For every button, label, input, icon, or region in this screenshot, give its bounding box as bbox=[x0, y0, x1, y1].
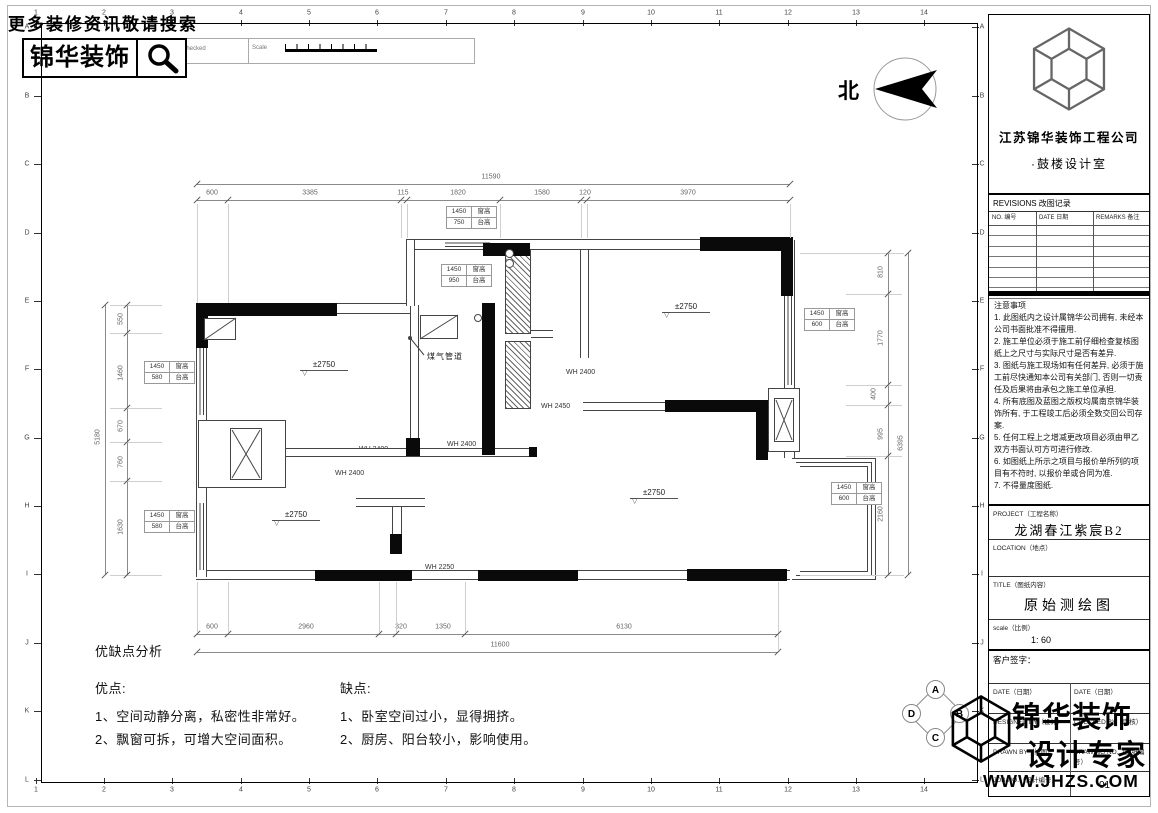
note-item: 4. 所有底图及蓝图之版权均属南京锦华装饰所有, 于工程竣工后必须全数交回公司存… bbox=[994, 396, 1144, 432]
dim-right-seg: 400 bbox=[871, 387, 878, 401]
wall-height-label: WH 2400 bbox=[335, 470, 364, 477]
grid-tick bbox=[972, 369, 979, 370]
grid-column-label: 12 bbox=[784, 787, 792, 794]
grid-tick bbox=[972, 780, 979, 781]
wall-thin bbox=[410, 305, 419, 450]
window-height-callout: 1450窗高 580台高 bbox=[144, 361, 195, 384]
grid-row-label: K bbox=[25, 708, 30, 715]
grid-tick bbox=[104, 778, 105, 784]
grid-tick bbox=[719, 20, 720, 26]
notes-title: 注意事项 bbox=[994, 300, 1144, 312]
dimension-line bbox=[908, 253, 909, 575]
grid-tick bbox=[972, 96, 979, 97]
dim-top-overall: 11590 bbox=[481, 174, 502, 181]
dim-top-seg: 1820 bbox=[449, 190, 467, 197]
pros-item: 1、空间动静分离，私密性非常好。 bbox=[95, 706, 305, 725]
title-section: TITLE（图纸内容） 原始测绘图 bbox=[989, 576, 1149, 619]
wall-segment bbox=[700, 237, 793, 251]
wall-segment bbox=[781, 240, 793, 296]
notes-section: 注意事项 1. 此图纸内之设计属锦华公司拥有, 未经本公司书面批准不得擅用. 2… bbox=[989, 296, 1149, 504]
wardrobe-box bbox=[204, 318, 236, 340]
note-item: 2. 施工单位必须于施工前仔细检查复核图纸上之尺寸与实际尺寸是否有差异. bbox=[994, 336, 1144, 360]
kitchen-fixture-box bbox=[420, 315, 458, 339]
grid-row-label: J bbox=[25, 640, 29, 647]
dimension-line bbox=[197, 652, 778, 653]
level-marker: ±2750▽ bbox=[272, 510, 320, 521]
grid-tick bbox=[514, 778, 515, 784]
extension-line bbox=[846, 294, 902, 295]
dimension-line bbox=[197, 634, 778, 635]
grid-row-label: H bbox=[24, 503, 29, 510]
gas-pipe-label: 煤气管道 bbox=[427, 351, 463, 362]
note-item: 6. 如图纸上所示之项目与报价单所列的项目有不符时, 以报价单或合同为准. bbox=[994, 456, 1144, 480]
scale-value: 1: 60 bbox=[1031, 635, 1051, 645]
grid-row-label: E bbox=[25, 298, 30, 305]
grid-tick bbox=[514, 20, 515, 26]
wall-thin bbox=[580, 250, 589, 358]
level-triangle-icon: ▽ bbox=[302, 369, 307, 377]
grid-column-label: 4 bbox=[239, 787, 243, 794]
grid-column-label: 1 bbox=[34, 787, 38, 794]
grid-tick bbox=[924, 778, 925, 784]
project-value: 龙湖春江紫宸B2 bbox=[989, 520, 1149, 539]
window-height-callout: 1450窗高 950台高 bbox=[441, 264, 492, 287]
scale-label: scale（比例） bbox=[993, 622, 1034, 632]
grid-tick bbox=[972, 233, 979, 234]
revisions-header: REVISIONS 改图记录 bbox=[989, 193, 1149, 211]
cons-item: 1、卧室空间过小，显得拥挤。 bbox=[340, 706, 523, 725]
drawing-sheet: 更多装修资讯敬请搜索 RevNo Revision note Signature… bbox=[0, 0, 1158, 813]
dimension-line bbox=[888, 253, 889, 575]
revision-row bbox=[989, 268, 1149, 278]
grid-column-label: 7 bbox=[444, 787, 448, 794]
company-name: 江苏锦华装饰工程公司 bbox=[989, 127, 1149, 146]
grid-tick bbox=[34, 96, 41, 97]
rev-col-no: NO. 编号 bbox=[989, 212, 1036, 225]
grid-column-label: 11 bbox=[715, 787, 722, 794]
grid-column-label: 6 bbox=[375, 10, 379, 17]
wall-segment bbox=[478, 570, 578, 581]
grid-tick bbox=[972, 643, 979, 644]
grid-tick bbox=[856, 778, 857, 784]
grid-row-label: H bbox=[979, 503, 984, 510]
grid-row-label: J bbox=[980, 640, 984, 647]
grid-column-label: 13 bbox=[852, 787, 860, 794]
level-marker: ±2750▽ bbox=[662, 302, 710, 313]
grid-tick bbox=[972, 506, 979, 507]
shaft-box-inner bbox=[230, 428, 262, 480]
grid-row-label: G bbox=[24, 435, 29, 442]
grid-tick bbox=[34, 301, 41, 302]
grid-tick bbox=[651, 778, 652, 784]
grid-row-label: I bbox=[26, 571, 28, 578]
sheet-title-value: 原始测绘图 bbox=[989, 595, 1149, 615]
shaft-box-inner bbox=[774, 398, 794, 442]
grid-row-label: I bbox=[981, 571, 983, 578]
window-height-callout: 1450窗高 750台高 bbox=[446, 206, 497, 229]
grid-column-label: 9 bbox=[581, 10, 585, 17]
extension-line bbox=[846, 405, 902, 406]
grid-column-label: 5 bbox=[307, 10, 311, 17]
flue-hatch bbox=[505, 341, 531, 409]
grid-column-label: 10 bbox=[647, 787, 655, 794]
dim-right-seg: 2160 bbox=[878, 505, 885, 523]
wall-thin bbox=[356, 498, 425, 507]
extension-line bbox=[790, 204, 791, 238]
extension-line bbox=[846, 385, 902, 386]
wall-segment bbox=[756, 412, 768, 460]
revision-row bbox=[989, 226, 1149, 236]
dimension-line bbox=[197, 184, 790, 185]
window-height-callout: 1450窗高 600台高 bbox=[831, 482, 882, 505]
brand-logo-box: 锦华装饰 bbox=[22, 38, 187, 78]
grid-column-label: 5 bbox=[307, 787, 311, 794]
dim-left-seg: 550 bbox=[118, 312, 125, 326]
grid-row-label: F bbox=[25, 366, 29, 373]
note-item: 7. 不得量度图纸. bbox=[994, 480, 1144, 492]
watermark-brand-line1: 锦华装饰 bbox=[1012, 694, 1132, 736]
dim-bottom-seg: 600 bbox=[205, 624, 219, 631]
wall-thin bbox=[531, 330, 553, 338]
dim-bottom-seg: 2960 bbox=[297, 624, 315, 631]
project-label: PROJECT（工程名称） bbox=[993, 508, 1062, 518]
rev-col-date: DATE 日期 bbox=[1036, 212, 1093, 225]
grid-tick bbox=[34, 711, 41, 712]
extension-line bbox=[379, 582, 380, 632]
grid-tick bbox=[36, 778, 37, 784]
wall-thin bbox=[583, 402, 665, 411]
wall-segment bbox=[315, 570, 412, 581]
grid-row-label: A bbox=[980, 24, 985, 31]
wall-segment bbox=[196, 303, 337, 316]
wall-segment bbox=[529, 447, 537, 457]
elevation-circle-d: D bbox=[902, 704, 921, 723]
grid-column-label: 13 bbox=[852, 10, 860, 17]
grid-tick bbox=[972, 438, 979, 439]
window-height-callout: 1450窗高 600台高 bbox=[804, 308, 855, 331]
wall-segment bbox=[406, 438, 420, 456]
strip-scale-label: Scale bbox=[252, 45, 267, 51]
level-triangle-icon: ▽ bbox=[274, 519, 279, 527]
grid-row-label: G bbox=[979, 435, 984, 442]
strip-divider bbox=[248, 39, 249, 63]
cons-item: 2、厨房、阳台较小，影响使用。 bbox=[340, 729, 537, 748]
wall-height-label: WH 2400 bbox=[566, 369, 595, 376]
location-label: LOCATION（地点） bbox=[993, 542, 1052, 552]
level-triangle-icon: ▽ bbox=[632, 497, 637, 505]
brand-logo-text: 锦华装饰 bbox=[24, 40, 136, 76]
dim-left-seg: 670 bbox=[118, 419, 125, 433]
project-section: PROJECT（工程名称） 龙湖春江紫宸B2 bbox=[989, 504, 1149, 539]
grid-tick bbox=[241, 20, 242, 26]
client-sign-section: 客户签字： bbox=[989, 649, 1149, 683]
extension-line bbox=[110, 408, 162, 409]
grid-tick bbox=[972, 27, 979, 28]
grid-tick bbox=[34, 643, 41, 644]
watermark-cube-icon bbox=[944, 686, 1018, 777]
grid-tick bbox=[583, 20, 584, 26]
grid-column-label: 3 bbox=[170, 787, 174, 794]
wall-thin bbox=[337, 303, 412, 314]
grid-tick bbox=[377, 778, 378, 784]
grid-column-label: 14 bbox=[920, 10, 928, 17]
grid-tick bbox=[856, 20, 857, 26]
note-item: 5. 任何工程上之增减更改项目必须由甲乙双方书面认可方可进行修改. bbox=[994, 432, 1144, 456]
window-symbol bbox=[196, 503, 207, 570]
grid-tick bbox=[972, 574, 979, 575]
grid-column-label: 8 bbox=[512, 10, 516, 17]
grid-column-label: 6 bbox=[375, 787, 379, 794]
pros-item: 2、飘窗可拆，可增大空间面积。 bbox=[95, 729, 292, 748]
level-marker: ±2750▽ bbox=[630, 488, 678, 499]
grid-tick bbox=[719, 778, 720, 784]
extension-line bbox=[407, 204, 408, 238]
watermark-url: WWW.JHZS.COM bbox=[983, 771, 1139, 792]
dim-right-seg: 995 bbox=[878, 427, 885, 441]
revision-row bbox=[989, 247, 1149, 257]
dim-top-seg: 3385 bbox=[301, 190, 319, 197]
level-triangle-icon: ▽ bbox=[664, 311, 669, 319]
elevation-circle-a: A bbox=[926, 680, 945, 699]
grid-tick bbox=[377, 20, 378, 26]
rev-table-divider bbox=[1093, 212, 1094, 292]
analysis-title: 优缺点分析 bbox=[95, 641, 163, 660]
grid-column-label: 14 bbox=[920, 787, 928, 794]
extension-line bbox=[110, 305, 162, 306]
extension-line bbox=[197, 582, 198, 632]
dim-left-seg: 1460 bbox=[118, 364, 125, 382]
wall-segment bbox=[482, 303, 495, 455]
wall-segment bbox=[390, 534, 402, 554]
watermark-brand-line2: 设计专家 bbox=[1026, 732, 1146, 774]
extension-line bbox=[581, 204, 582, 238]
title-block: 江苏锦华装饰工程公司 ·鼓楼设计室 REVISIONS 改图记录 NO. 编号 … bbox=[988, 14, 1150, 797]
grid-tick bbox=[172, 778, 173, 784]
extension-line bbox=[110, 481, 162, 482]
grid-column-label: 9 bbox=[581, 787, 585, 794]
window-symbol bbox=[196, 345, 207, 415]
grid-tick bbox=[972, 301, 979, 302]
level-marker: ±2750▽ bbox=[300, 360, 348, 371]
extension-line bbox=[587, 204, 588, 238]
location-section: LOCATION（地点） bbox=[989, 539, 1149, 576]
fixture-circle bbox=[474, 314, 482, 322]
grid-column-label: 7 bbox=[444, 10, 448, 17]
grid-tick bbox=[788, 20, 789, 26]
grid-column-label: 10 bbox=[647, 10, 655, 17]
revision-row bbox=[989, 278, 1149, 288]
grid-row-label: B bbox=[980, 93, 985, 100]
extension-line bbox=[110, 575, 162, 576]
extension-line bbox=[197, 204, 198, 303]
dim-right-seg: 810 bbox=[878, 265, 885, 279]
wall-height-label: WH 2400 bbox=[447, 441, 476, 448]
grid-tick bbox=[651, 20, 652, 26]
dim-bottom-overall: 11600 bbox=[490, 642, 511, 649]
grid-tick bbox=[34, 780, 41, 781]
extension-line bbox=[778, 582, 779, 650]
extension-line bbox=[465, 582, 466, 632]
scale-section: scale（比例） 1: 60 bbox=[989, 619, 1149, 649]
wall-height-label: WH 2450 bbox=[541, 403, 570, 410]
wall-segment bbox=[687, 569, 787, 581]
extension-line bbox=[846, 456, 902, 457]
dim-bottom-seg: 1350 bbox=[434, 624, 452, 631]
wall-thin bbox=[406, 240, 415, 306]
grid-tick bbox=[788, 778, 789, 784]
extension-line bbox=[228, 204, 229, 303]
sink-circle bbox=[505, 259, 514, 268]
grid-tick bbox=[34, 164, 41, 165]
note-item: 3. 图纸与施工现场如有任何差异, 必须于施工前尽快通知本公司有关部门, 否则一… bbox=[994, 360, 1144, 396]
window-height-callout: 1450窗高 580台高 bbox=[144, 510, 195, 533]
grid-row-label: F bbox=[980, 366, 984, 373]
client-sign-label: 客户签字： bbox=[993, 654, 1036, 666]
dim-top-seg: 3970 bbox=[679, 190, 697, 197]
company-logo-icon bbox=[989, 23, 1149, 120]
grid-tick bbox=[34, 506, 41, 507]
window-symbol bbox=[784, 293, 795, 385]
grid-column-label: 11 bbox=[715, 10, 722, 17]
grid-row-label: L bbox=[25, 777, 29, 784]
grid-tick bbox=[34, 438, 41, 439]
grid-tick bbox=[309, 20, 310, 26]
pros-title: 优点: bbox=[95, 678, 126, 697]
sheet-title-label: TITLE（图纸内容） bbox=[993, 579, 1050, 589]
grid-row-label: E bbox=[980, 298, 985, 305]
elevation-circle-c: C bbox=[926, 728, 945, 747]
scale-bar bbox=[285, 49, 377, 52]
north-label: 北 bbox=[838, 75, 859, 105]
grid-row-label: C bbox=[24, 161, 29, 168]
grid-column-label: 12 bbox=[784, 10, 792, 17]
grid-row-label: D bbox=[979, 230, 984, 237]
sink-circle bbox=[505, 249, 514, 258]
grid-column-label: 2 bbox=[102, 787, 106, 794]
grid-column-label: 4 bbox=[239, 10, 243, 17]
dim-left-seg: 760 bbox=[118, 455, 125, 469]
dim-bottom-seg: 6130 bbox=[615, 624, 633, 631]
grid-column-label: 8 bbox=[512, 787, 516, 794]
grid-row-label: D bbox=[24, 230, 29, 237]
wall-segment bbox=[665, 400, 768, 412]
dim-top-seg: 1580 bbox=[533, 190, 551, 197]
extension-line bbox=[110, 442, 162, 443]
grid-row-label: B bbox=[25, 93, 30, 100]
cons-title: 缺点: bbox=[340, 678, 371, 697]
grid-tick bbox=[34, 369, 41, 370]
search-hint-text: 更多装修资讯敬请搜索 bbox=[8, 10, 198, 35]
grid-tick bbox=[446, 778, 447, 784]
grid-tick bbox=[446, 20, 447, 26]
dimension-line bbox=[105, 305, 106, 575]
grid-tick bbox=[309, 778, 310, 784]
grid-tick bbox=[972, 164, 979, 165]
grid-tick bbox=[583, 778, 584, 784]
extension-line bbox=[396, 582, 397, 632]
note-item: 1. 此图纸内之设计属锦华公司拥有, 未经本公司书面批准不得擅用. bbox=[994, 312, 1144, 336]
dim-left-seg: 1630 bbox=[118, 518, 125, 536]
rev-col-remarks: REMARKS 备注 bbox=[1093, 212, 1149, 225]
dim-right-seg: 1770 bbox=[878, 329, 885, 347]
grid-tick bbox=[34, 233, 41, 234]
extension-line bbox=[228, 582, 229, 632]
grid-row-label: C bbox=[979, 161, 984, 168]
extension-line bbox=[500, 204, 501, 238]
studio-name: ·鼓楼设计室 bbox=[989, 155, 1149, 172]
grid-tick bbox=[241, 778, 242, 784]
dimension-line bbox=[197, 200, 790, 201]
dim-right-overall: 6395 bbox=[898, 434, 905, 452]
revision-row bbox=[989, 236, 1149, 246]
revision-row bbox=[989, 257, 1149, 267]
rev-table-divider bbox=[1036, 212, 1037, 292]
extension-line bbox=[401, 204, 402, 238]
grid-tick bbox=[924, 20, 925, 26]
dim-left-overall: 5180 bbox=[95, 428, 102, 446]
extension-line bbox=[110, 333, 162, 334]
search-icon bbox=[138, 40, 185, 76]
grid-tick bbox=[34, 574, 41, 575]
revisions-table: NO. 编号 DATE 日期 REMARKS 备注 bbox=[989, 211, 1149, 291]
dim-top-seg: 600 bbox=[205, 190, 219, 197]
